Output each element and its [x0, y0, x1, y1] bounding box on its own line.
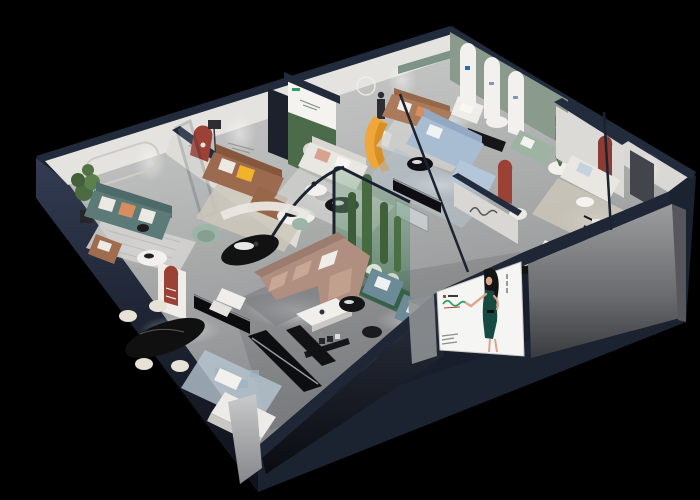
- showroom-render: [0, 0, 700, 500]
- small-black-pot: [137, 224, 149, 232]
- white-tray: [234, 242, 254, 250]
- billboard-vertical-text: [506, 274, 508, 293]
- isometric-floorplan-svg: [0, 0, 700, 500]
- arched-panel-3: [508, 71, 524, 138]
- poster-brand-mark: [292, 88, 300, 91]
- model-belt: [487, 310, 494, 313]
- mint-armchair: [192, 224, 220, 244]
- table-vase: [254, 242, 259, 247]
- black-side-table-2: [362, 326, 382, 338]
- small-white-table: [576, 197, 594, 207]
- mint-stool: [292, 218, 308, 230]
- panel-logo-3: [513, 96, 518, 99]
- black-side-table: [339, 296, 365, 312]
- red-arched-column: [498, 160, 512, 204]
- panel-logo-1: [465, 66, 470, 70]
- cups: [344, 300, 354, 304]
- arched-panel-2: [484, 57, 500, 124]
- white-tray: [412, 160, 422, 164]
- panel-logo-2: [489, 82, 494, 85]
- table-decor: [144, 254, 154, 259]
- niche-sculpture: [201, 143, 206, 148]
- model-face: [486, 277, 492, 285]
- front-panel-gray: [408, 295, 437, 364]
- dark-doorway: [268, 88, 288, 160]
- arched-panel-1: [460, 43, 476, 108]
